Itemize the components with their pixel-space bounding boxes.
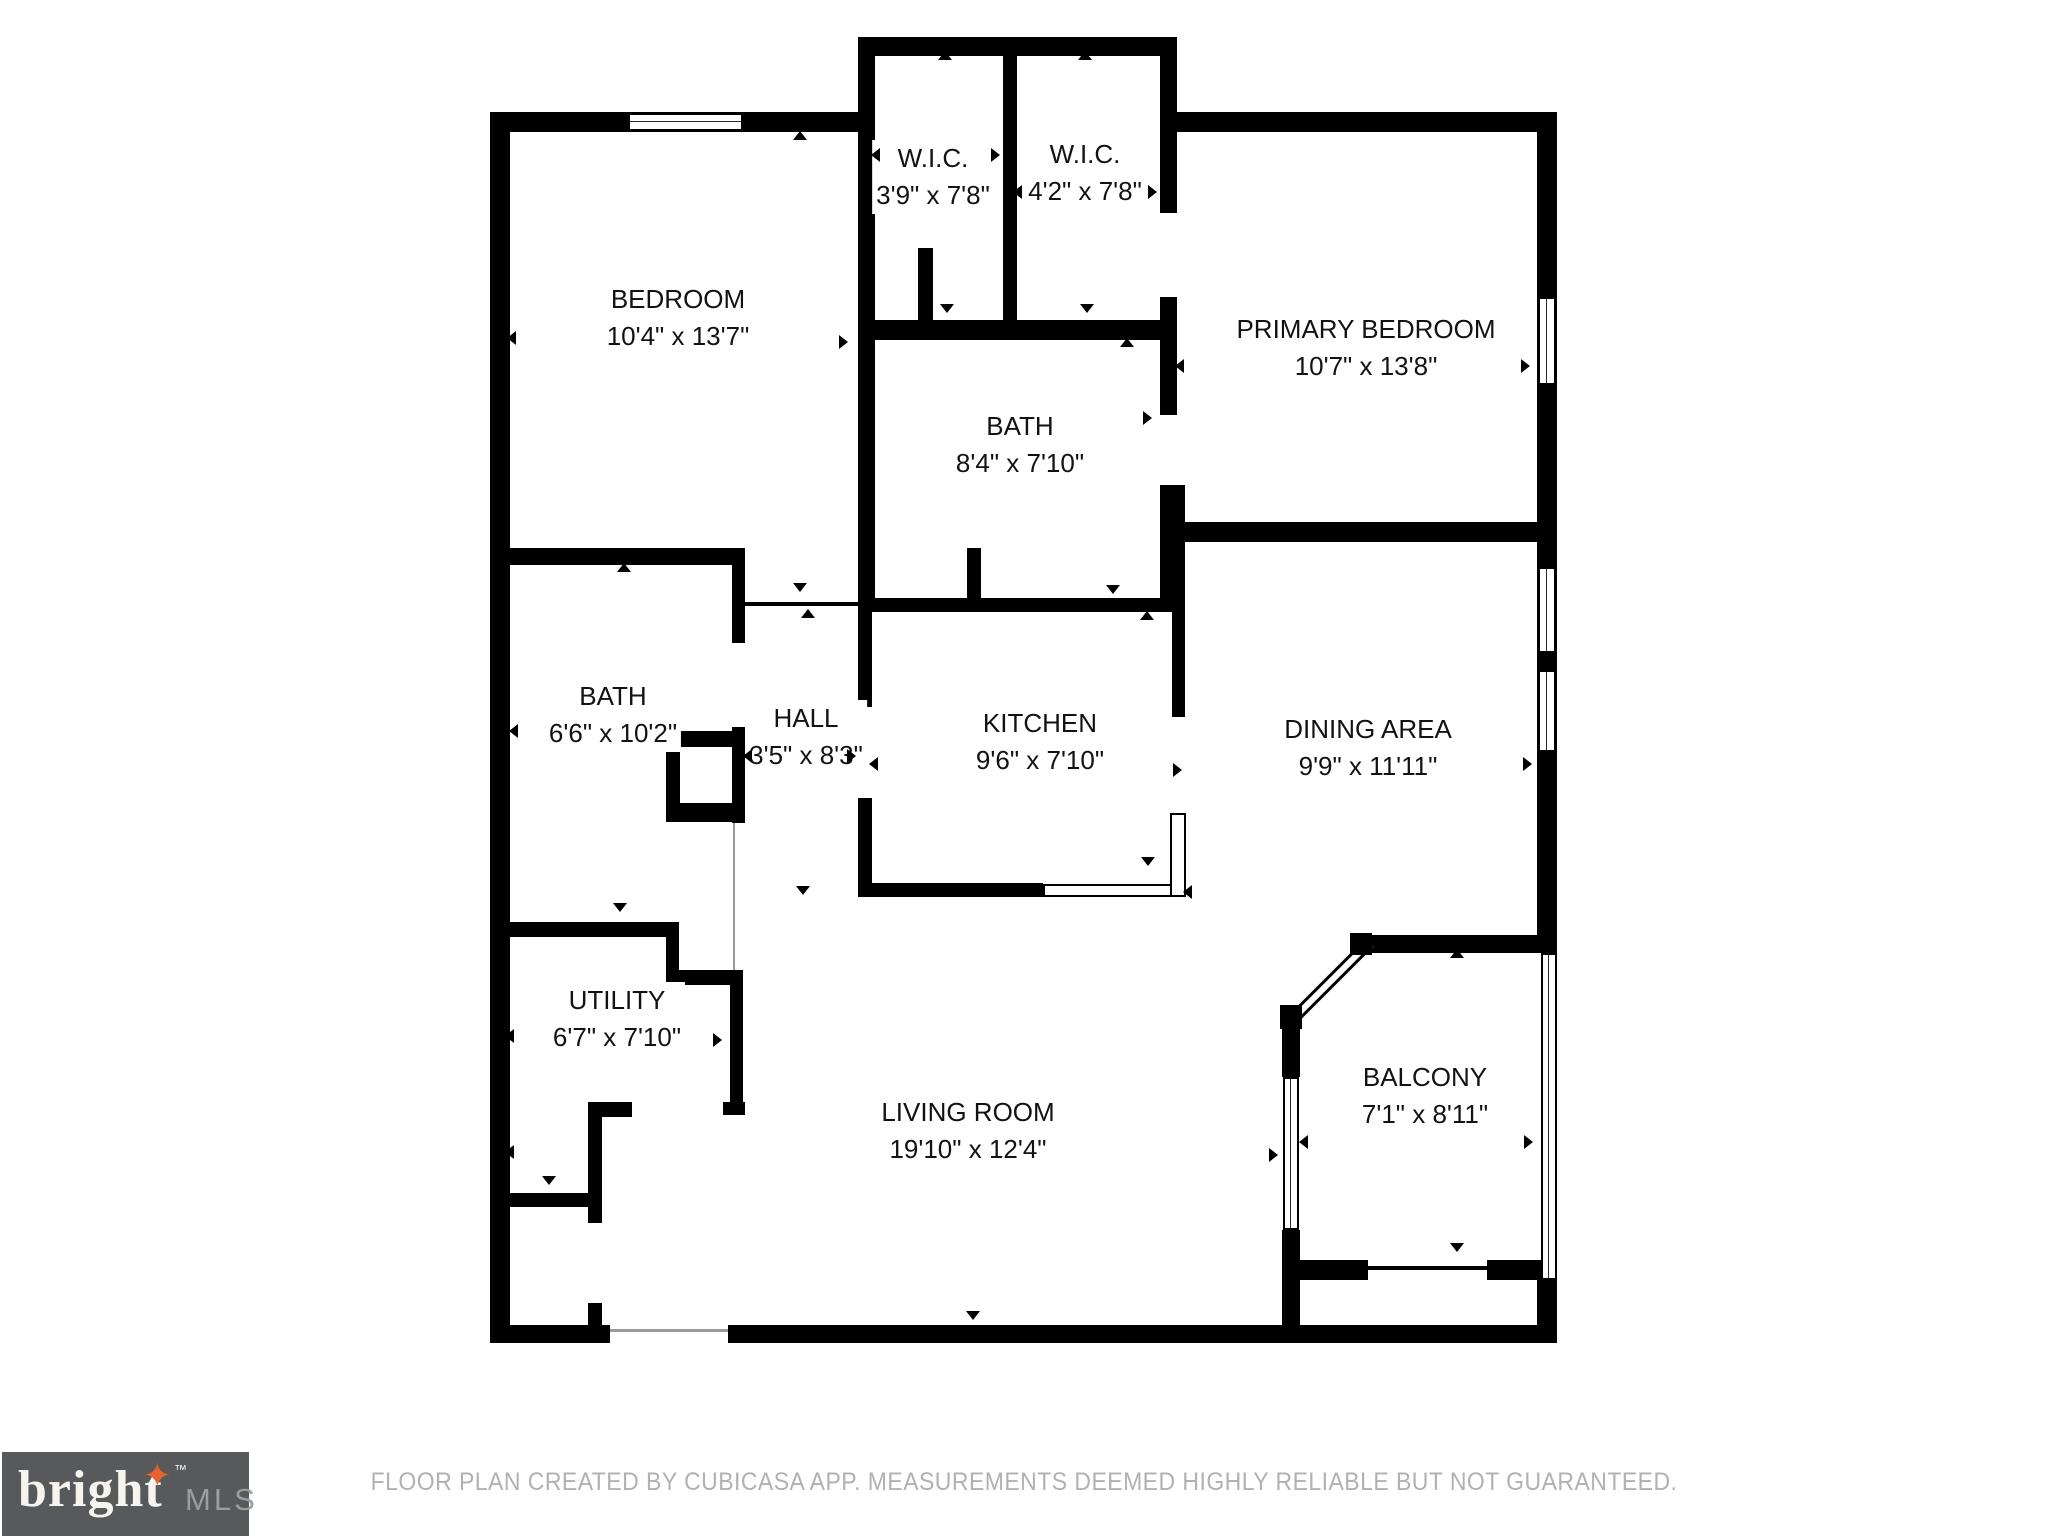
star-icon: ✦ (143, 1456, 172, 1496)
room-label-wic-1: W.I.C. 3'9" x 7'8" (872, 140, 994, 214)
window (1538, 670, 1556, 752)
wall (1280, 1005, 1302, 1029)
wall (1160, 112, 1557, 132)
wall (732, 548, 745, 612)
open-boundary-line (733, 823, 735, 970)
room-label-kitchen: KITCHEN 9'6" x 7'10" (972, 705, 1108, 779)
wall (858, 37, 1177, 56)
measure-arrow (1140, 611, 1154, 620)
room-name: LIVING ROOM (877, 1094, 1058, 1131)
room-dims: 6'7" x 7'10" (549, 1019, 685, 1056)
room-name: W.I.C. (872, 140, 994, 177)
wall (728, 1325, 1557, 1343)
balcony-rail-line (1368, 1266, 1487, 1270)
wall (858, 320, 1177, 340)
room-dims: 9'9" x 11'11" (1280, 748, 1456, 785)
door-arrow (1143, 411, 1152, 425)
room-dims: 8'4" x 7'10" (952, 445, 1088, 482)
room-dims: 10'4" x 13'7" (603, 318, 754, 355)
wall (858, 612, 872, 707)
room-label-bedroom: BEDROOM 10'4" x 13'7" (603, 281, 754, 355)
measure-arrow (940, 304, 954, 313)
kitchen-counter-passthrough (1043, 884, 1172, 897)
measure-arrow (617, 563, 631, 572)
room-label-living-room: LIVING ROOM 19'10" x 12'4" (877, 1094, 1058, 1168)
measure-arrow (793, 583, 807, 592)
logo-mls-text: MLS (185, 1482, 258, 1518)
balcony-sliding-door (1283, 1077, 1299, 1230)
measure-arrow (1148, 185, 1157, 199)
measure-arrow (505, 1029, 514, 1043)
measure-arrow (507, 331, 516, 345)
measure-arrow (801, 609, 815, 618)
window (628, 113, 743, 131)
wall (588, 1303, 602, 1343)
wall (588, 1102, 602, 1223)
room-name: BATH (545, 678, 681, 715)
room-name: W.I.C. (1024, 136, 1146, 173)
wall (1300, 1260, 1368, 1280)
measure-arrow (1173, 763, 1182, 777)
measure-arrow (847, 749, 856, 763)
wall (588, 1102, 632, 1117)
measure-arrow (839, 335, 848, 349)
room-name: BEDROOM (603, 281, 754, 318)
wall (1172, 542, 1185, 717)
measure-arrow (796, 886, 810, 895)
room-name: PRIMARY BEDROOM (1232, 311, 1499, 348)
room-dims: 19'10" x 12'4" (877, 1131, 1058, 1168)
measure-arrow (938, 51, 952, 60)
entry-threshold-line (610, 1329, 728, 1332)
measure-arrow (1450, 1243, 1464, 1252)
wall (732, 612, 745, 643)
measure-arrow (793, 131, 807, 140)
room-name: DINING AREA (1280, 711, 1456, 748)
measure-arrow (871, 148, 880, 162)
measure-arrow (542, 1176, 556, 1185)
measure-arrow (613, 903, 627, 912)
wall (1282, 1230, 1300, 1343)
measure-arrow (1078, 51, 1092, 60)
room-label-wic-2: W.I.C. 4'2" x 7'8" (1024, 136, 1146, 210)
room-label-balcony: BALCONY 7'1" x 8'11" (1358, 1059, 1492, 1133)
measure-arrow (1175, 359, 1184, 373)
measure-arrow (1183, 885, 1192, 899)
measure-arrow (713, 1033, 722, 1047)
window (1538, 297, 1556, 385)
measure-arrow (1523, 757, 1532, 771)
room-label-bath: BATH 8'4" x 7'10" (952, 408, 1088, 482)
wall (1537, 1280, 1557, 1343)
room-dims: 10'7" x 13'8" (1232, 348, 1499, 385)
measure-arrow (869, 757, 878, 771)
room-label-bath-2: BATH 6'6" x 10'2" (545, 678, 681, 752)
room-name: UTILITY (549, 982, 685, 1019)
measure-arrow (509, 724, 518, 738)
room-dims: 4'2" x 7'8" (1024, 173, 1146, 210)
measure-arrow (991, 148, 1000, 162)
room-name: BALCONY (1358, 1059, 1492, 1096)
measure-arrow (1524, 1135, 1533, 1149)
room-dims: 9'6" x 7'10" (972, 742, 1108, 779)
window (1538, 567, 1556, 653)
room-label-dining-area: DINING AREA 9'9" x 11'11" (1280, 711, 1456, 785)
logo-brand-text: bright (18, 1460, 163, 1519)
measure-arrow (743, 749, 752, 763)
room-label-primary-bedroom: PRIMARY BEDROOM 10'7" x 13'8" (1232, 311, 1499, 385)
measure-arrow (1269, 1148, 1278, 1162)
room-dims: 7'1" x 8'11" (1358, 1096, 1492, 1133)
room-dims: 3'9" x 7'8" (872, 177, 994, 214)
wall (858, 883, 1043, 897)
room-label-utility: UTILITY 6'7" x 7'10" (549, 982, 685, 1056)
measure-arrow (1450, 949, 1464, 958)
measure-arrow (1120, 338, 1134, 347)
doorway-threshold (745, 602, 858, 606)
disclaimer-text: FLOOR PLAN CREATED BY CUBICASA APP. MEAS… (82, 1468, 1966, 1497)
measure-arrow (1141, 857, 1155, 866)
wall (723, 1102, 745, 1115)
measure-arrow (1299, 1135, 1308, 1149)
measure-arrow (505, 1145, 514, 1159)
room-name: BATH (952, 408, 1088, 445)
room-name: HALL (745, 700, 867, 737)
wall (490, 922, 679, 937)
wall (1160, 340, 1177, 415)
wall (918, 248, 933, 320)
room-name: KITCHEN (972, 705, 1108, 742)
measure-arrow (1521, 359, 1530, 373)
measure-arrow (1106, 585, 1120, 594)
wall (1160, 522, 1557, 542)
floor-plan: W.I.C. 3'9" x 7'8" W.I.C. 4'2" x 7'8" BE… (0, 0, 2048, 1536)
wall (858, 598, 1185, 612)
measure-arrow (966, 1311, 980, 1320)
measure-arrow (1013, 185, 1022, 199)
trademark-symbol: ™ (174, 1462, 187, 1477)
wall (730, 985, 743, 1115)
wall (858, 37, 875, 132)
wall (1350, 933, 1372, 955)
balcony-rail (1541, 953, 1557, 1280)
room-dims: 6'6" x 10'2" (545, 715, 681, 752)
wall (508, 1193, 588, 1207)
wall (1160, 297, 1177, 340)
brightmls-logo: bright ✦ ™ MLS (2, 1452, 249, 1536)
measure-arrow (1080, 304, 1094, 313)
